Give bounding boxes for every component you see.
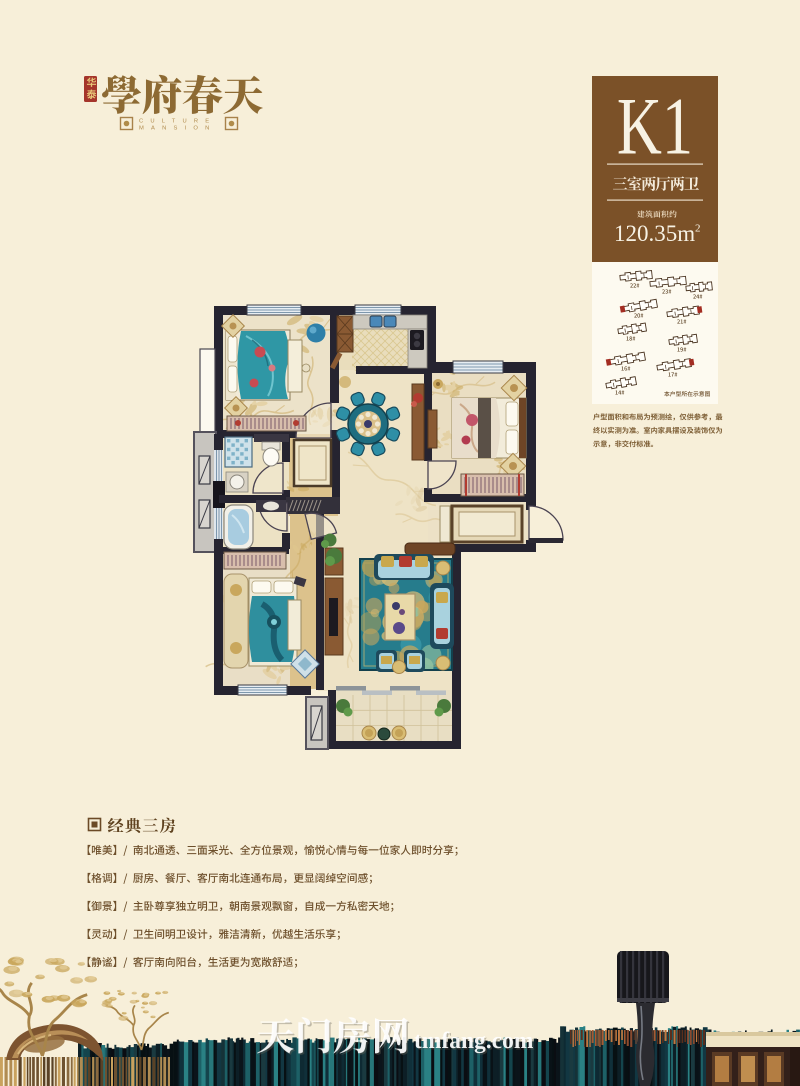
svg-text:MANSION: MANSION [139,126,216,132]
svg-text:K1: K1 [617,80,693,171]
svg-text:120.35m: 120.35m [614,221,695,246]
svg-text:2: 2 [695,223,701,235]
svg-text:CULTURE: CULTURE [139,119,216,125]
